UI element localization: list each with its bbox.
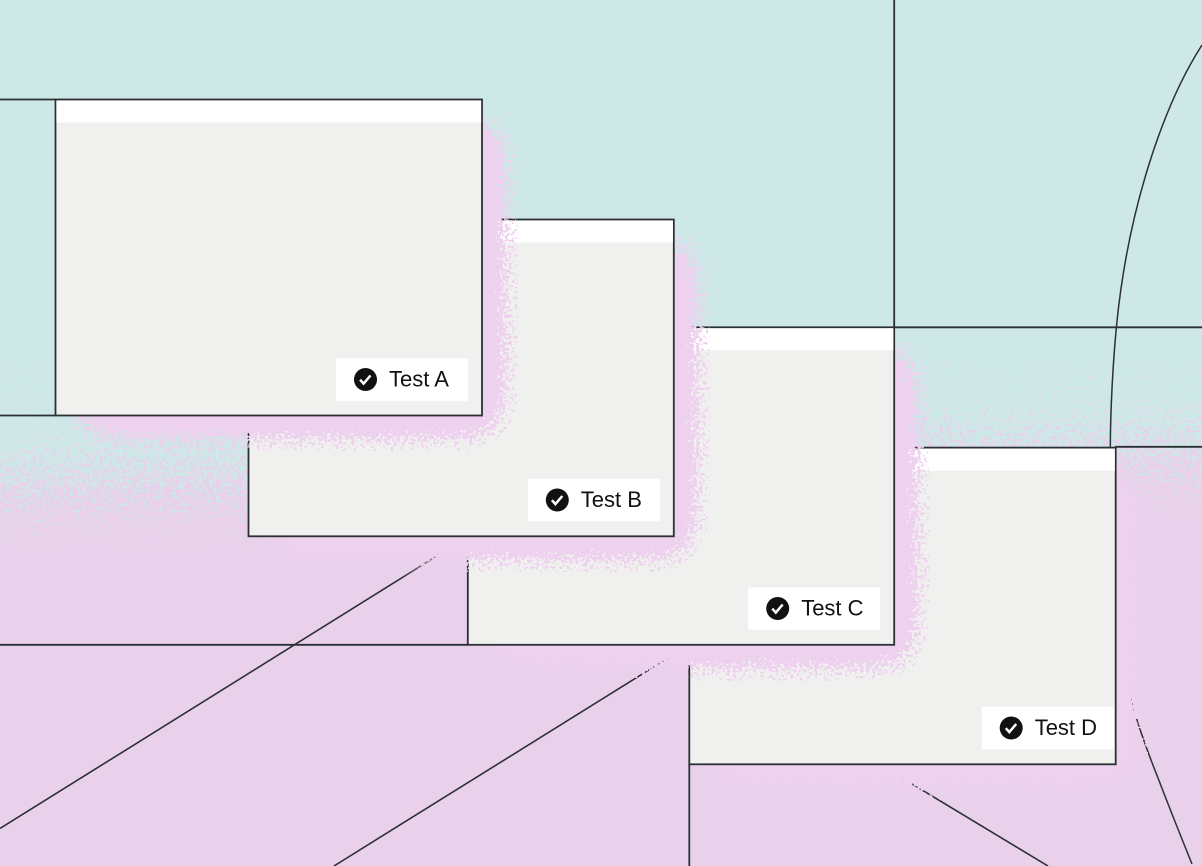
svg-text:Test A: Test A [389,366,449,391]
svg-text:Test B: Test B [581,487,642,512]
svg-text:Test D: Test D [1035,715,1097,740]
svg-text:Test C: Test C [801,595,863,620]
